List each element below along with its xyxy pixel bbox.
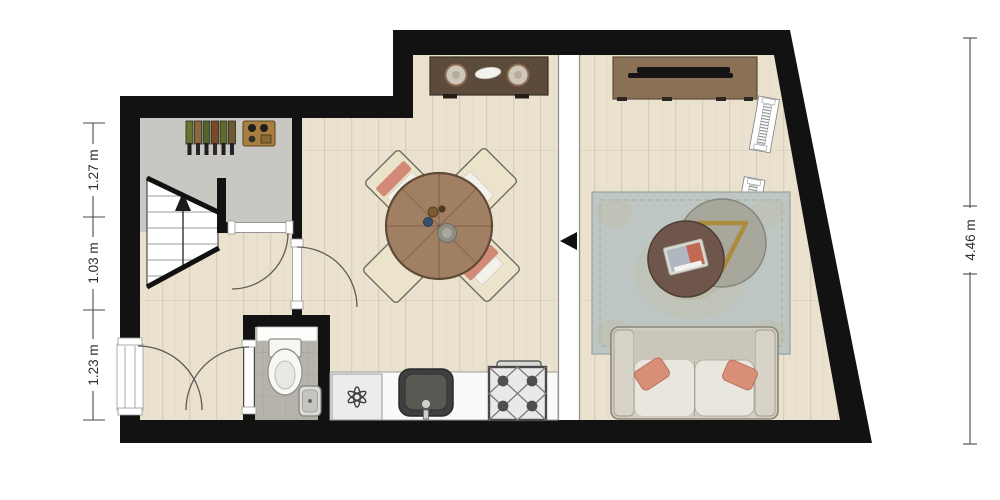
floor-plan-canvas: 1.27 m 1.03 m 1.23 m 4.46 m bbox=[0, 0, 1000, 500]
washing-machine-icon bbox=[332, 374, 382, 420]
sink-icon bbox=[399, 369, 453, 419]
dimension-label: 4.46 m bbox=[963, 219, 978, 260]
tv bbox=[628, 67, 733, 78]
sideboard bbox=[430, 57, 548, 99]
dimension-label: 1.03 m bbox=[86, 242, 101, 283]
dimension-label: 1.23 m bbox=[86, 344, 101, 385]
dimension-label: 1.27 m bbox=[86, 149, 101, 190]
threshold-strip bbox=[558, 55, 580, 420]
entrance-door bbox=[117, 338, 143, 415]
toilet-door bbox=[242, 340, 256, 414]
tv-cabinet bbox=[613, 57, 757, 101]
toilet bbox=[268, 339, 302, 395]
entry-console bbox=[243, 121, 275, 146]
stove-icon bbox=[489, 361, 546, 420]
dining-table bbox=[386, 173, 492, 279]
interior-door bbox=[291, 239, 303, 309]
sofa bbox=[611, 327, 778, 419]
toilet-sink bbox=[299, 386, 321, 416]
coffee-table-round bbox=[648, 221, 724, 297]
interior-door bbox=[228, 221, 293, 234]
floor-plan-drawing: 1.27 m 1.03 m 1.23 m 4.46 m bbox=[0, 0, 1000, 500]
